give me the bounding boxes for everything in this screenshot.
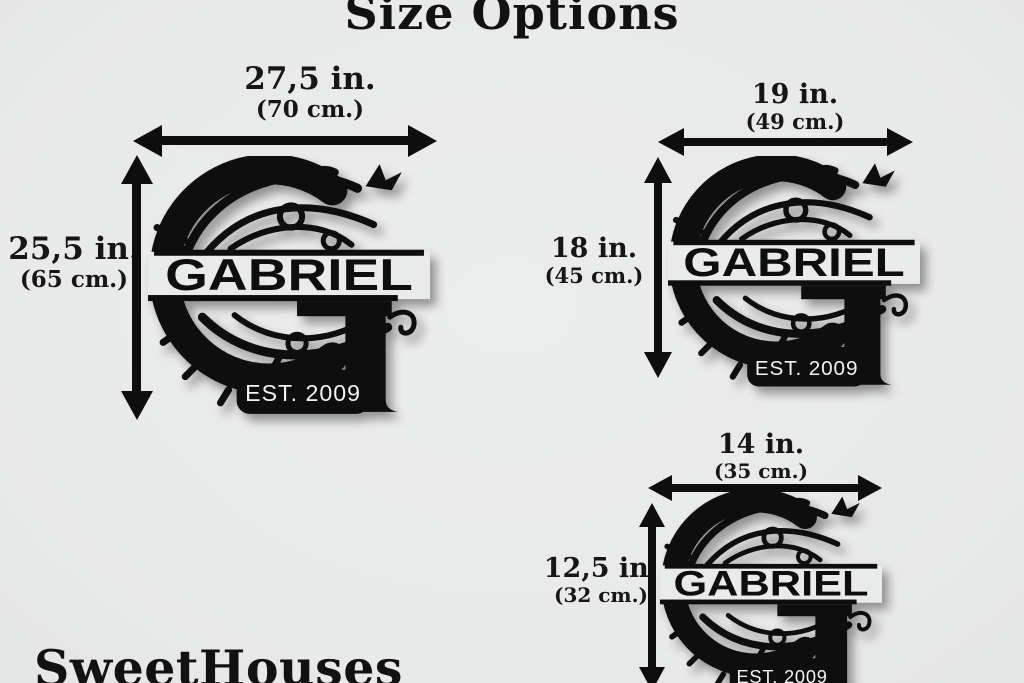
monogram-sign-medium: GABRIEL EST. 2009 (668, 156, 920, 392)
name-plate-text: GABRIEL (683, 241, 904, 285)
est-badge-text: EST. 2009 (755, 357, 859, 380)
medium-height-label: 18 in. (45 cm.) (524, 234, 664, 288)
small-width-cm: (35 cm.) (645, 460, 877, 482)
medium-width-label: 19 in. (49 cm.) (670, 80, 920, 134)
brand-logo-text: SweetHouses (34, 644, 403, 683)
large-width-inches: 27,5 in. (160, 62, 460, 97)
name-plate-text: GABRIEL (673, 565, 868, 604)
medium-height-arrow (654, 183, 662, 352)
page-title: Size Options (0, 0, 1024, 36)
large-height-arrow (132, 184, 141, 391)
medium-width-arrow (684, 138, 887, 146)
large-width-label: 27,5 in. (70 cm.) (160, 62, 460, 122)
leaf-flourish (862, 163, 894, 186)
small-height-arrow (648, 527, 656, 667)
large-height-cm: (65 cm.) (4, 267, 144, 293)
large-width-cm: (70 cm.) (160, 97, 460, 123)
size-options-poster: Size Options 27,5 in. (70 cm.) 25,5 in. … (0, 0, 1024, 683)
leaf-flourish (831, 496, 860, 517)
name-plate-text: GABRIEL (165, 251, 413, 300)
small-width-inches: 14 in. (645, 430, 877, 460)
medium-height-cm: (45 cm.) (524, 264, 664, 288)
medium-height-inches: 18 in. (524, 234, 664, 264)
est-badge-text: EST. 2009 (245, 380, 361, 406)
large-height-label: 25,5 in. (65 cm.) (4, 232, 144, 292)
small-width-label: 14 in. (35 cm.) (645, 430, 877, 483)
medium-width-inches: 19 in. (670, 80, 920, 110)
monogram-sign-small: GABRIEL EST. 2009 (660, 490, 882, 683)
medium-width-cm: (49 cm.) (670, 110, 920, 134)
est-badge-text: EST. 2009 (736, 666, 827, 683)
leaf-flourish (366, 164, 402, 190)
large-height-inches: 25,5 in. (4, 232, 144, 267)
monogram-sign-large: GABRIEL EST. 2009 (148, 156, 430, 420)
large-width-arrow (162, 136, 408, 145)
